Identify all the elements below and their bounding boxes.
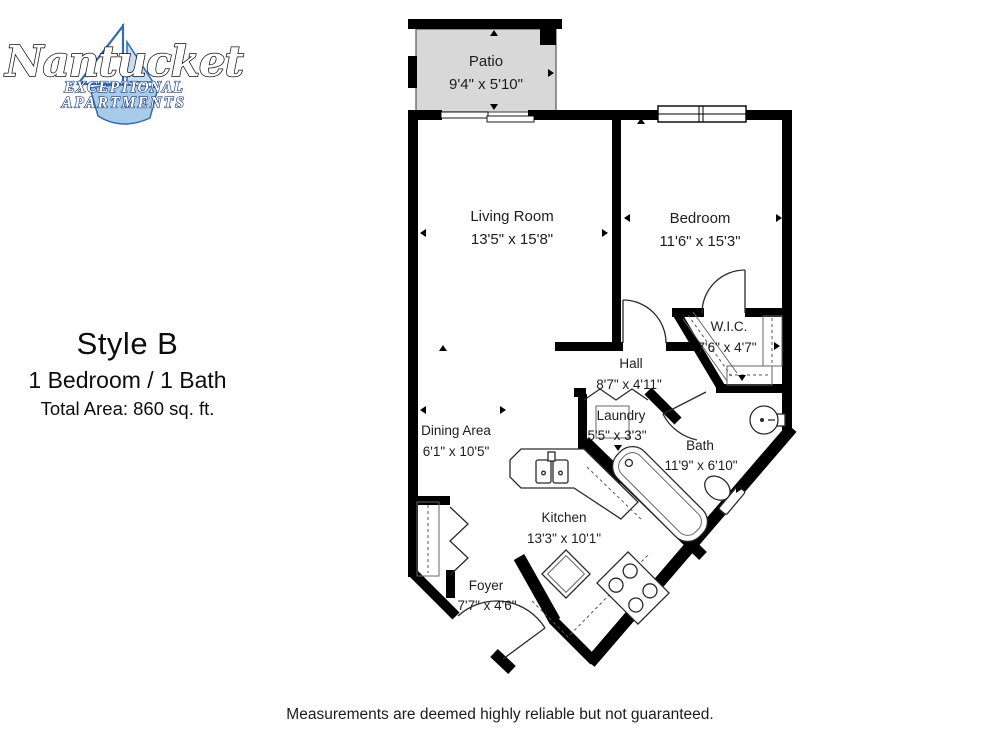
wic-door <box>702 270 745 313</box>
bath-sink <box>750 406 785 434</box>
room-dims-laundry: 5'5" x 3'3" <box>587 428 646 443</box>
patio-area <box>416 29 556 112</box>
room-label-foyer: Foyer <box>469 578 504 593</box>
refrigerator <box>542 550 590 598</box>
logo-tagline-line2: APARTMENTS <box>61 95 186 112</box>
wall-hall-top-left <box>555 342 623 351</box>
wall-laundry-top-stub <box>574 388 586 397</box>
wall-living-bedroom-divider <box>612 110 621 350</box>
foyer-closet-bifold-door <box>450 507 468 575</box>
wall-kitchen-bottom-left <box>553 620 594 661</box>
wic-side-shelf <box>763 316 782 366</box>
room-dims-hall: 8'7" x 4'11" <box>596 377 662 392</box>
room-label-kitchen: Kitchen <box>541 510 586 525</box>
wall-dining-foyer-stub <box>412 496 450 505</box>
wall-patio-corner <box>540 29 556 45</box>
room-dims-kitchen: 13'3" x 10'1" <box>527 531 601 546</box>
room-label-laundry: Laundry <box>597 408 646 423</box>
wall-laundry-bath <box>648 391 678 421</box>
kitchen-sink-faucet <box>548 452 555 461</box>
room-dims-patio: 9'4" x 5'10" <box>449 76 523 93</box>
room-label-bath: Bath <box>686 438 714 453</box>
patio-sliding-door-panel1 <box>441 112 488 118</box>
room-dims-bath: 11'9" x 6'10" <box>664 458 737 473</box>
floorplan-page: Nantucket EXCEPTIONAL APARTMENTS <box>0 0 1000 750</box>
wall-patio-left <box>408 56 417 88</box>
plan-style-title: Style B <box>5 326 250 362</box>
room-dims-bedroom: 11'6" x 15'3" <box>659 233 740 250</box>
plan-info: Style B 1 Bedroom / 1 Bath Total Area: 8… <box>5 326 250 420</box>
plan-config: 1 Bedroom / 1 Bath <box>5 367 250 394</box>
floor-plan: Patio 9'4" x 5'10" Living Room 13'5" x 1… <box>408 19 792 670</box>
logo-tagline-line1: EXCEPTIONAL <box>63 79 184 96</box>
room-label-patio: Patio <box>469 53 503 70</box>
wall-top-mid <box>528 110 624 120</box>
patio-sliding-door-panel2 <box>487 116 534 122</box>
bedroom-door <box>623 300 666 343</box>
plan-total-area: Total Area: 860 sq. ft. <box>5 398 250 420</box>
room-dims-foyer: 7'7" x 4'6" <box>457 598 516 613</box>
room-label-hall: Hall <box>619 356 642 371</box>
room-label-dining: Dining Area <box>421 423 491 438</box>
stove <box>597 552 669 624</box>
wall-patio-top <box>408 19 562 29</box>
room-label-wic: W.I.C. <box>711 319 748 334</box>
room-dims-wic: 7'6" x 4'7" <box>697 340 756 355</box>
room-label-bedroom: Bedroom <box>670 210 731 227</box>
room-label-living: Living Room <box>470 208 553 225</box>
wall-foyer-tip <box>494 653 512 670</box>
room-dims-living: 13'5" x 15'8" <box>471 231 553 248</box>
disclaimer-text: Measurements are deemed highly reliable … <box>0 706 1000 724</box>
room-dims-dining: 6'1" x 10'5" <box>423 444 490 459</box>
logo: Nantucket EXCEPTIONAL APARTMENTS <box>3 24 243 124</box>
